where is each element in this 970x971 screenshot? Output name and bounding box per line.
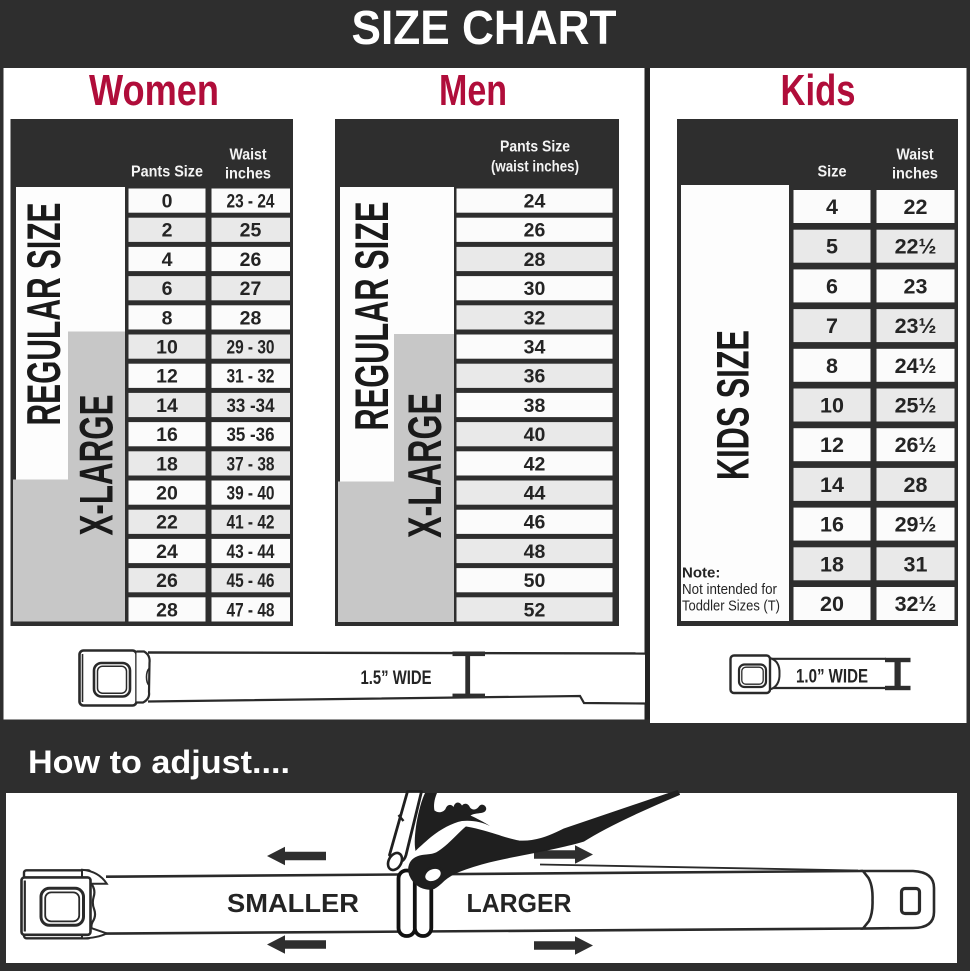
svg-text:(waist inches): (waist inches) [491,159,579,176]
svg-text:Kids: Kids [781,67,856,115]
svg-text:22½: 22½ [895,235,937,259]
svg-text:16: 16 [156,424,178,446]
svg-text:24: 24 [156,541,178,563]
svg-text:28: 28 [240,307,262,329]
svg-text:41 - 42: 41 - 42 [227,512,275,534]
svg-text:7: 7 [826,314,838,338]
svg-text:Waist: Waist [897,147,934,164]
svg-text:23: 23 [904,274,928,298]
svg-text:1.5” WIDE: 1.5” WIDE [361,667,432,689]
svg-text:inches: inches [225,166,271,183]
svg-text:32½: 32½ [895,592,937,616]
svg-text:22: 22 [904,195,928,219]
svg-text:10: 10 [820,394,844,418]
svg-text:35 -36: 35 -36 [227,424,275,446]
svg-text:45 - 46: 45 - 46 [227,570,275,592]
svg-text:26½: 26½ [895,433,937,457]
svg-text:2: 2 [162,220,173,242]
svg-text:Waist: Waist [230,147,267,164]
svg-text:Men: Men [439,67,507,115]
svg-text:36: 36 [524,366,546,388]
svg-text:37 - 38: 37 - 38 [227,453,275,475]
svg-text:Pants Size: Pants Size [131,164,203,181]
svg-text:4: 4 [162,249,173,271]
svg-text:29½: 29½ [895,513,937,537]
svg-text:42: 42 [524,453,546,475]
svg-text:Pants Size: Pants Size [500,139,570,156]
svg-text:Note:: Note: [682,565,720,582]
svg-text:47 - 48: 47 - 48 [227,599,275,621]
svg-text:16: 16 [820,513,844,537]
svg-text:REGULAR SIZE: REGULAR SIZE [17,203,70,426]
svg-text:28: 28 [904,473,928,497]
svg-text:30: 30 [524,278,546,300]
svg-text:Toddler Sizes (T): Toddler Sizes (T) [682,598,780,615]
svg-text:12: 12 [820,433,844,457]
svg-text:31: 31 [904,552,928,576]
svg-text:1.0” WIDE: 1.0” WIDE [796,666,868,688]
svg-text:48: 48 [524,541,546,563]
svg-text:How to adjust....: How to adjust.... [28,744,290,780]
svg-text:6: 6 [162,278,173,300]
svg-text:26: 26 [156,570,178,592]
svg-text:Women: Women [89,67,219,115]
svg-text:KIDS SIZE: KIDS SIZE [708,330,759,480]
svg-text:Size: Size [818,164,847,181]
svg-text:23 - 24: 23 - 24 [227,191,275,213]
svg-text:8: 8 [826,354,838,378]
svg-text:26: 26 [240,249,262,271]
svg-text:27: 27 [240,278,262,300]
svg-text:14: 14 [156,395,178,417]
svg-text:22: 22 [156,512,178,534]
svg-text:SIZE CHART: SIZE CHART [352,2,617,55]
svg-text:34: 34 [524,337,546,359]
svg-text:38: 38 [524,395,546,417]
svg-text:X-LARGE: X-LARGE [398,393,451,538]
svg-text:25: 25 [240,220,262,242]
svg-text:28: 28 [524,249,546,271]
svg-text:46: 46 [524,512,546,534]
svg-text:20: 20 [156,483,178,505]
svg-text:26: 26 [524,220,546,242]
svg-text:43 - 44: 43 - 44 [227,541,275,563]
svg-text:8: 8 [162,307,173,329]
svg-text:0: 0 [162,191,173,213]
svg-text:12: 12 [156,366,178,388]
svg-text:LARGER: LARGER [467,888,572,918]
svg-text:SMALLER: SMALLER [227,888,359,918]
svg-text:25½: 25½ [895,394,937,418]
svg-text:4: 4 [826,195,838,219]
svg-text:32: 32 [524,307,546,329]
svg-text:Not intended for: Not intended for [682,581,777,598]
svg-text:REGULAR SIZE: REGULAR SIZE [345,202,398,431]
svg-text:5: 5 [826,235,838,259]
svg-text:14: 14 [820,473,844,497]
svg-text:inches: inches [892,166,938,183]
svg-text:50: 50 [524,570,546,592]
svg-text:23½: 23½ [895,314,937,338]
svg-text:24½: 24½ [895,354,937,378]
svg-text:18: 18 [820,552,844,576]
svg-text:31 - 32: 31 - 32 [227,366,275,388]
svg-text:X-LARGE: X-LARGE [70,395,123,536]
svg-text:20: 20 [820,592,844,616]
svg-text:52: 52 [524,599,546,621]
svg-text:10: 10 [156,337,178,359]
svg-text:28: 28 [156,599,178,621]
svg-text:18: 18 [156,453,178,475]
svg-text:24: 24 [524,191,546,213]
svg-text:44: 44 [524,483,546,505]
svg-text:39 - 40: 39 - 40 [227,483,275,505]
svg-text:6: 6 [826,274,838,298]
svg-text:40: 40 [524,424,546,446]
svg-text:29 - 30: 29 - 30 [227,337,275,359]
svg-text:33 -34: 33 -34 [227,395,275,417]
